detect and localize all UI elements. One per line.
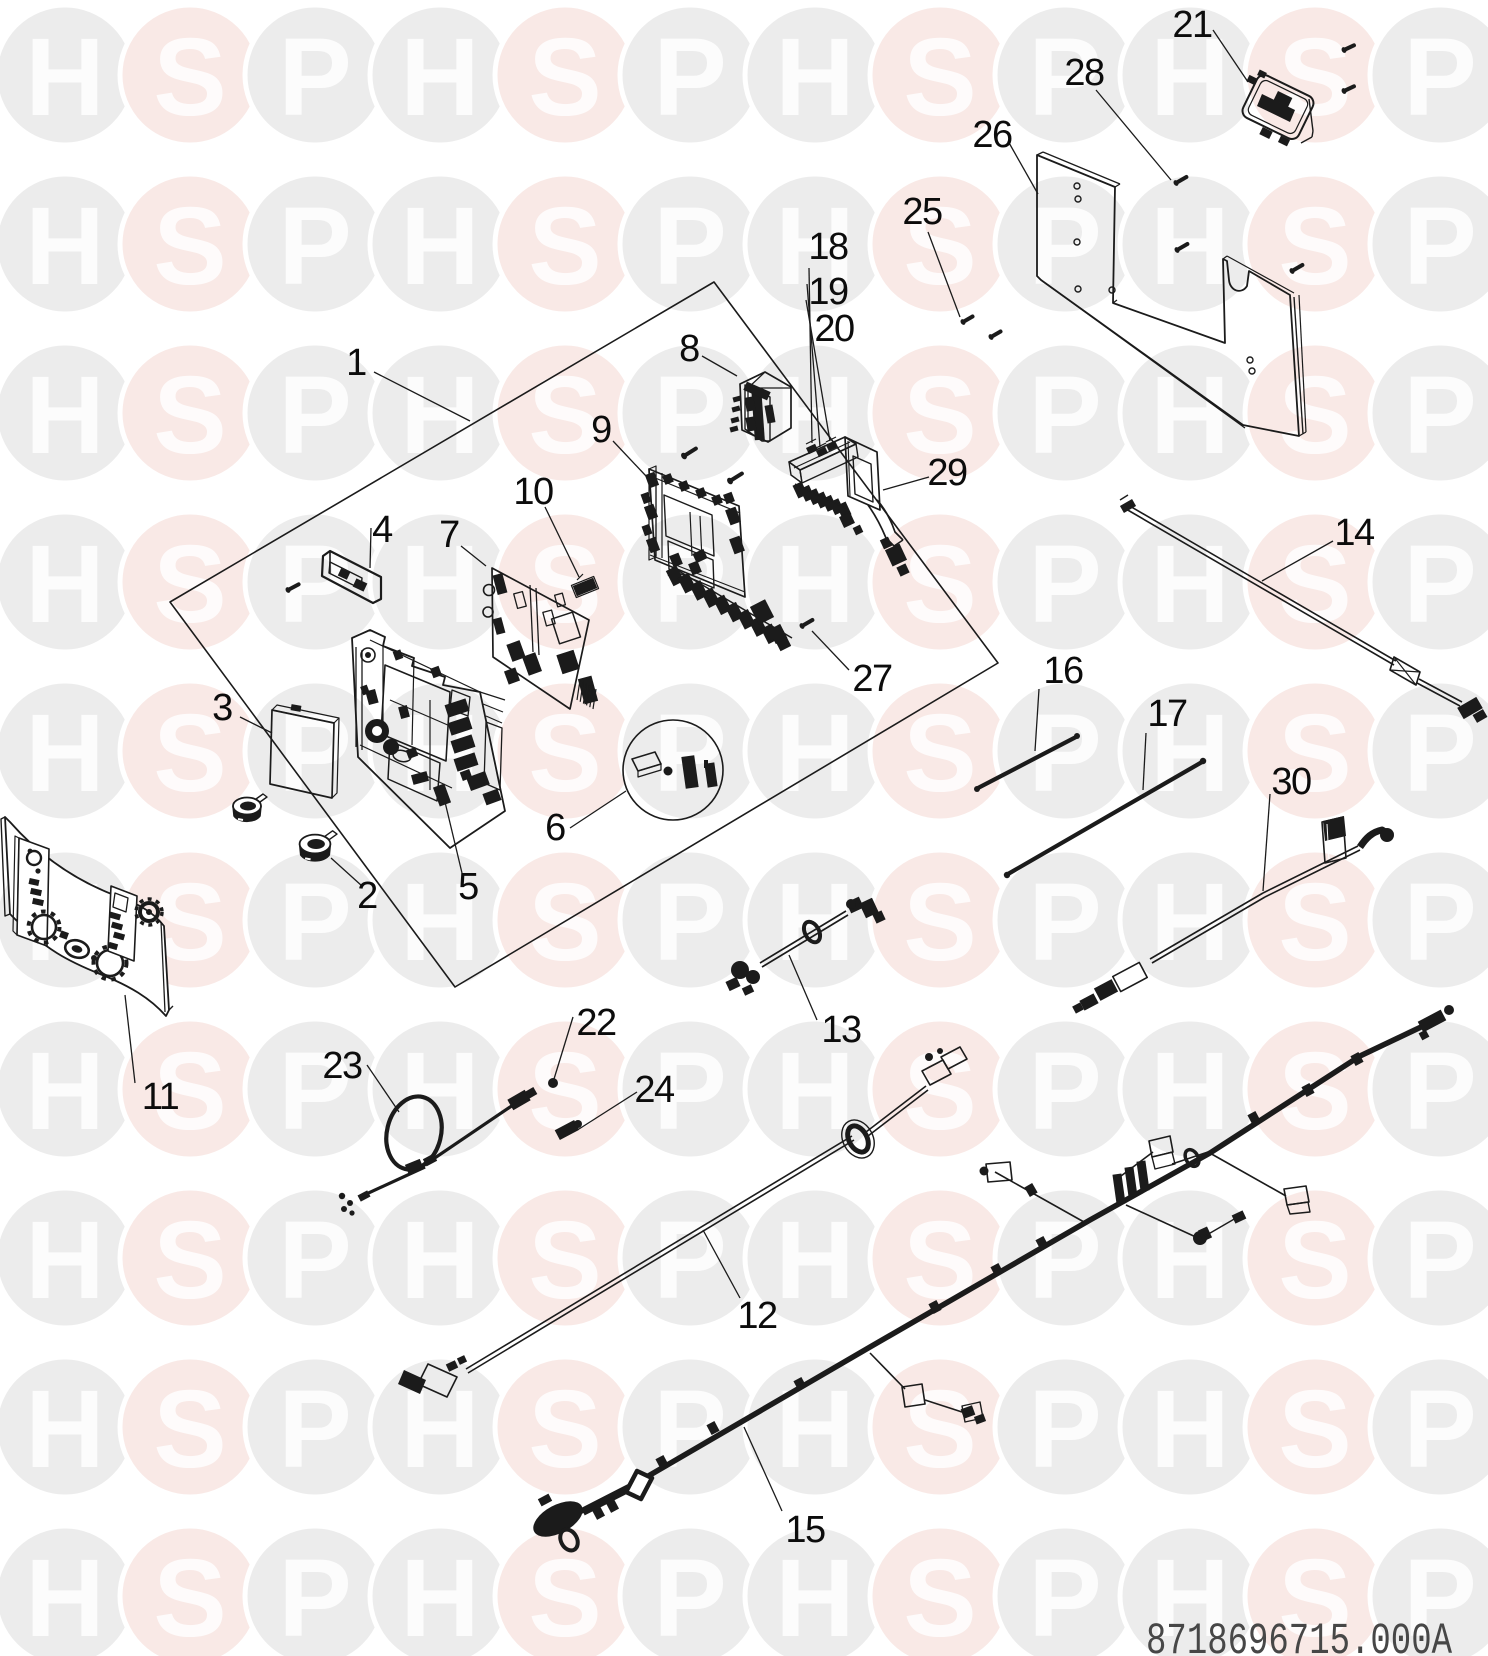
- svg-text:27: 27: [852, 658, 892, 700]
- svg-text:S: S: [528, 692, 601, 815]
- svg-text:P: P: [1403, 1368, 1476, 1491]
- svg-text:H: H: [1150, 185, 1229, 308]
- svg-text:H: H: [400, 354, 479, 477]
- svg-text:10: 10: [513, 471, 553, 513]
- svg-text:19: 19: [808, 271, 848, 313]
- svg-text:13: 13: [821, 1009, 861, 1051]
- svg-text:P: P: [278, 1537, 351, 1656]
- svg-text:P: P: [278, 861, 351, 984]
- svg-text:H: H: [775, 16, 854, 139]
- svg-text:P: P: [653, 354, 726, 477]
- svg-text:H: H: [25, 1537, 104, 1656]
- svg-text:S: S: [153, 523, 226, 646]
- svg-text:S: S: [903, 16, 976, 139]
- svg-text:H: H: [775, 692, 854, 815]
- svg-text:P: P: [1028, 692, 1101, 815]
- svg-text:H: H: [25, 16, 104, 139]
- svg-text:S: S: [903, 692, 976, 815]
- svg-text:5: 5: [458, 866, 478, 908]
- svg-text:S: S: [903, 1368, 976, 1491]
- svg-text:S: S: [1278, 185, 1351, 308]
- svg-text:14: 14: [1334, 512, 1375, 554]
- svg-text:S: S: [903, 861, 976, 984]
- svg-text:23: 23: [322, 1045, 362, 1087]
- svg-text:21: 21: [1172, 4, 1212, 46]
- svg-text:P: P: [653, 185, 726, 308]
- svg-text:8718696715.000A: 8718696715.000A: [1146, 1616, 1452, 1656]
- svg-text:H: H: [400, 1537, 479, 1656]
- svg-text:16: 16: [1043, 650, 1083, 692]
- svg-text:S: S: [528, 1537, 601, 1656]
- svg-text:H: H: [25, 1030, 104, 1153]
- svg-text:H: H: [775, 523, 854, 646]
- svg-text:H: H: [775, 1199, 854, 1322]
- svg-text:S: S: [153, 354, 226, 477]
- svg-text:H: H: [1150, 1030, 1229, 1153]
- svg-text:H: H: [25, 185, 104, 308]
- svg-text:15: 15: [785, 1509, 825, 1551]
- svg-text:P: P: [1403, 16, 1476, 139]
- svg-text:P: P: [1403, 1030, 1476, 1153]
- svg-text:P: P: [1028, 354, 1101, 477]
- svg-text:P: P: [1028, 523, 1101, 646]
- svg-text:S: S: [153, 1368, 226, 1491]
- svg-text:P: P: [1028, 1368, 1101, 1491]
- svg-text:P: P: [278, 185, 351, 308]
- svg-text:8: 8: [679, 328, 699, 370]
- svg-text:H: H: [400, 185, 479, 308]
- svg-text:S: S: [153, 16, 226, 139]
- svg-text:7: 7: [439, 514, 459, 556]
- svg-text:9: 9: [591, 409, 611, 451]
- svg-text:S: S: [528, 185, 601, 308]
- svg-text:P: P: [278, 354, 351, 477]
- svg-text:2: 2: [357, 875, 377, 917]
- svg-text:17: 17: [1147, 693, 1187, 735]
- svg-text:20: 20: [814, 308, 854, 350]
- svg-text:H: H: [25, 523, 104, 646]
- svg-text:P: P: [1403, 861, 1476, 984]
- svg-text:S: S: [528, 861, 601, 984]
- svg-text:P: P: [1403, 523, 1476, 646]
- svg-text:H: H: [25, 1199, 104, 1322]
- svg-text:S: S: [1278, 354, 1351, 477]
- svg-text:H: H: [775, 1368, 854, 1491]
- svg-text:H: H: [400, 1199, 479, 1322]
- svg-text:S: S: [153, 1199, 226, 1322]
- svg-text:P: P: [1403, 185, 1476, 308]
- svg-text:S: S: [1278, 1199, 1351, 1322]
- svg-text:12: 12: [737, 1295, 777, 1337]
- svg-text:H: H: [25, 1368, 104, 1491]
- svg-text:H: H: [1150, 354, 1229, 477]
- svg-text:30: 30: [1271, 761, 1311, 803]
- svg-text:H: H: [1150, 1199, 1229, 1322]
- svg-text:P: P: [1028, 1030, 1101, 1153]
- svg-text:P: P: [653, 16, 726, 139]
- svg-text:P: P: [278, 1368, 351, 1491]
- svg-text:29: 29: [927, 452, 967, 494]
- svg-text:H: H: [775, 1537, 854, 1656]
- svg-text:S: S: [153, 1537, 226, 1656]
- svg-text:S: S: [528, 1199, 601, 1322]
- svg-text:26: 26: [972, 114, 1012, 156]
- svg-text:H: H: [1150, 1368, 1229, 1491]
- svg-text:18: 18: [808, 226, 848, 268]
- svg-text:1: 1: [346, 342, 366, 384]
- svg-text:P: P: [1403, 354, 1476, 477]
- svg-text:S: S: [528, 1368, 601, 1491]
- svg-text:24: 24: [634, 1069, 675, 1111]
- svg-text:S: S: [903, 1537, 976, 1656]
- svg-text:S: S: [1278, 1030, 1351, 1153]
- svg-text:S: S: [528, 16, 601, 139]
- svg-text:H: H: [400, 16, 479, 139]
- svg-text:P: P: [278, 1199, 351, 1322]
- svg-text:22: 22: [576, 1002, 616, 1044]
- svg-text:P: P: [278, 16, 351, 139]
- svg-text:H: H: [25, 692, 104, 815]
- svg-text:28: 28: [1064, 52, 1104, 94]
- svg-text:P: P: [1028, 861, 1101, 984]
- svg-text:P: P: [278, 523, 351, 646]
- svg-text:25: 25: [902, 191, 942, 233]
- svg-text:P: P: [653, 861, 726, 984]
- svg-text:6: 6: [545, 807, 565, 849]
- svg-text:P: P: [1028, 185, 1101, 308]
- svg-text:S: S: [1278, 1368, 1351, 1491]
- svg-text:H: H: [1150, 861, 1229, 984]
- svg-text:P: P: [653, 1537, 726, 1656]
- svg-text:P: P: [1028, 1537, 1101, 1656]
- svg-text:4: 4: [372, 509, 393, 551]
- svg-text:S: S: [153, 185, 226, 308]
- svg-text:11: 11: [142, 1076, 179, 1118]
- svg-text:P: P: [1403, 1199, 1476, 1322]
- svg-text:3: 3: [212, 687, 232, 729]
- svg-text:H: H: [25, 354, 104, 477]
